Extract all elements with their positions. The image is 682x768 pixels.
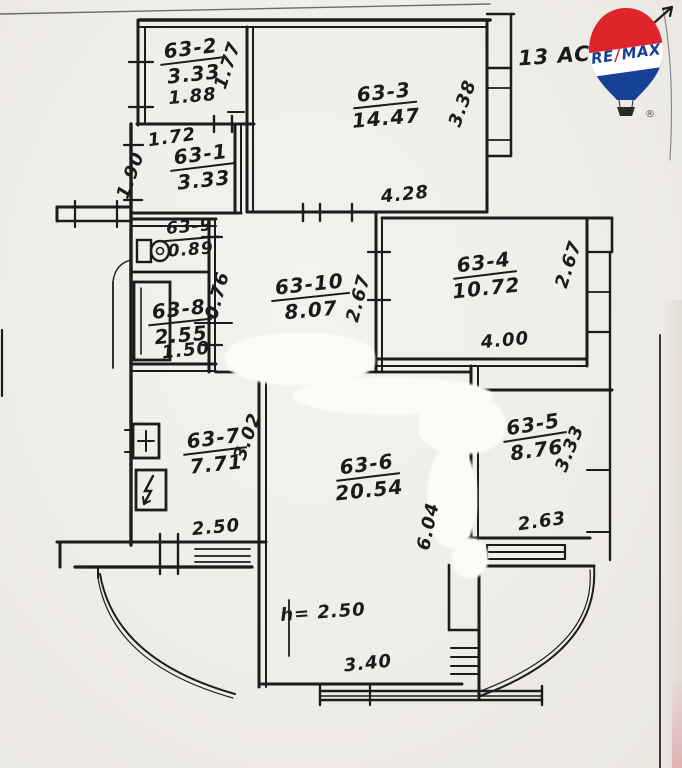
remax-re: RE [590,47,615,68]
room-label-63-3: 63-3 14.47 [338,78,432,133]
whiteout-patch [452,538,488,578]
balloon-basket-icon [617,100,635,116]
scanned-floor-plan-page: RE/MAX ® 13 AC 63-2 3.33 63-3 14.47 63-1… [0,0,682,768]
room-label-63-9: 63-9 0.89 [151,216,230,262]
whiteout-patch [225,333,375,385]
page-top-edge [0,4,490,14]
room-label-63-4: 63-4 10.72 [438,247,532,303]
registered-trademark: ® [645,109,655,120]
room-label-63-6: 63-6 20.54 [321,449,415,505]
electrical-panel-icon [136,470,166,510]
